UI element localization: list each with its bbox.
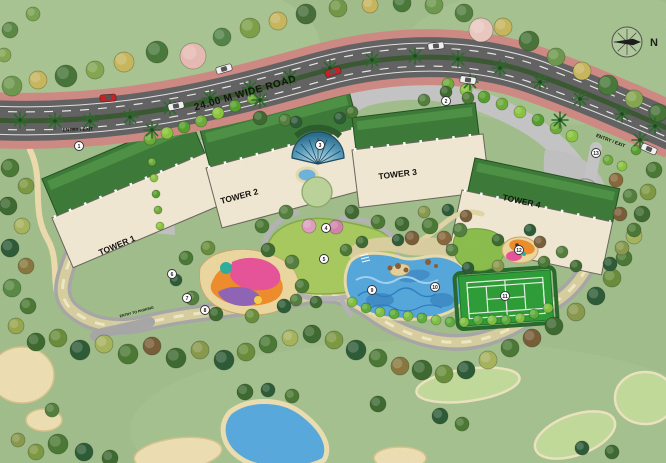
- site-plan: 12345678910111213 24.00 M WIDE ROAD ENTR…: [0, 0, 666, 463]
- site-plan-canvas: 12345678910111213 24.00 M WIDE ROAD ENTR…: [0, 0, 666, 463]
- paper-texture: [0, 0, 666, 463]
